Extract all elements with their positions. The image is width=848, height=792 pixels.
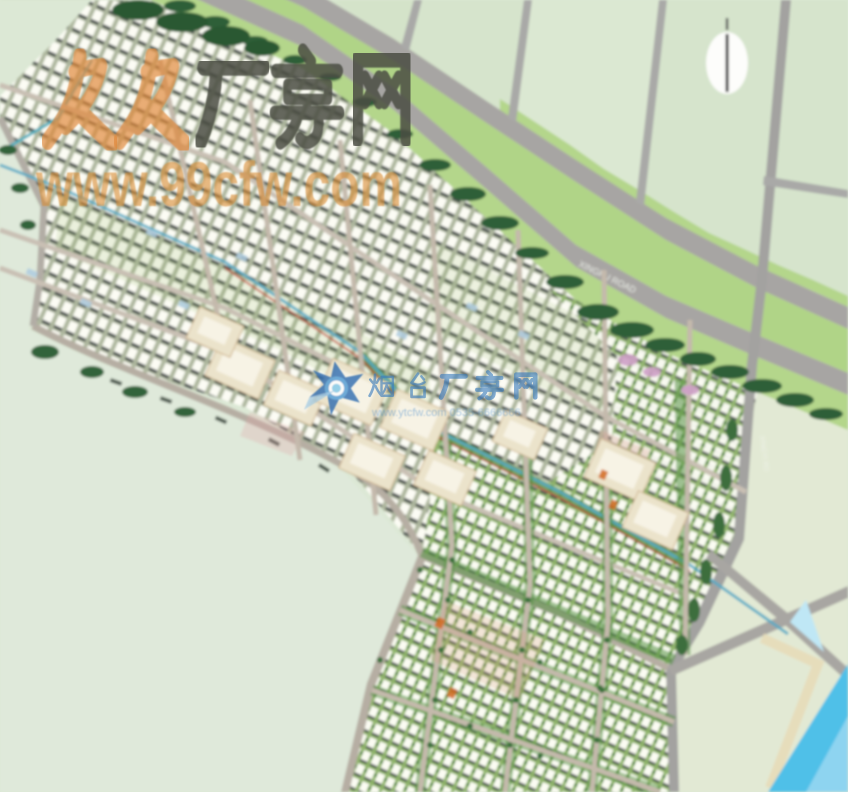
svg-text:www.99cfw.com: www.99cfw.com (35, 150, 402, 220)
svg-text:www.ytcfw.com 0535-6666666: www.ytcfw.com 0535-6666666 (371, 407, 521, 419)
